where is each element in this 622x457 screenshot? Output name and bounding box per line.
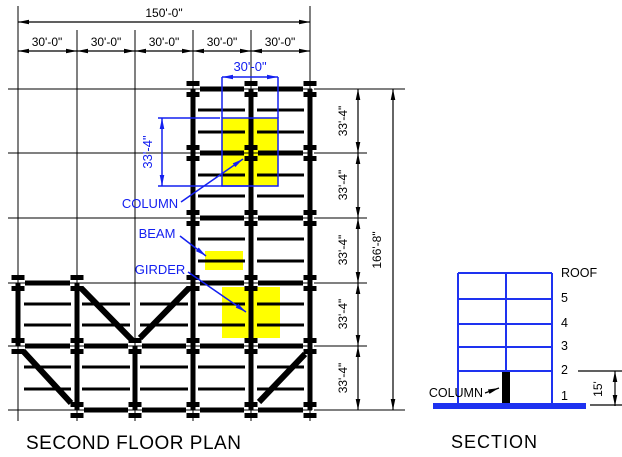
story-height-dim: 15' xyxy=(591,381,605,397)
section-column-leader xyxy=(485,388,499,393)
tributary-depth-dim: 33'-4" xyxy=(140,135,155,169)
bay-width-dim: 30'-0" xyxy=(149,35,180,49)
section-column-label: COLUMN xyxy=(429,386,483,400)
girder-label: GIRDER xyxy=(135,262,186,277)
level-label-2: 2 xyxy=(561,363,568,377)
grid-lines xyxy=(8,6,405,421)
level-label-1: 1 xyxy=(561,389,568,403)
drawing-svg: 150'-0" 30'-0" 30'-0" 30'-0" 30'-0" 30'-… xyxy=(0,0,622,457)
overall-depth-dim: 166'-8" xyxy=(370,231,384,268)
bay-depth-dim: 33'-4" xyxy=(336,170,350,201)
ground-line xyxy=(433,403,586,409)
bay-width-dim: 30'-0" xyxy=(265,35,296,49)
building-section: ROOF 5 4 3 2 1 COLUMN 15' xyxy=(429,266,622,409)
beam-label: BEAM xyxy=(139,226,176,241)
level-label-5: 5 xyxy=(561,291,568,305)
level-label-3: 3 xyxy=(561,339,568,353)
plan-title: SECOND FLOOR PLAN xyxy=(26,433,241,454)
bay-depth-dim: 33'-4" xyxy=(336,299,350,330)
bay-depth-dim: 33'-4" xyxy=(336,106,350,137)
bay-depth-dim: 33'-4" xyxy=(336,235,350,266)
bay-width-dim: 30'-0" xyxy=(207,35,238,49)
level-label-4: 4 xyxy=(561,316,568,330)
level-label-roof: ROOF xyxy=(561,266,597,280)
overall-width-dim: 150'-0" xyxy=(145,6,182,20)
structural-drawing: 150'-0" 30'-0" 30'-0" 30'-0" 30'-0" 30'-… xyxy=(0,0,622,457)
bay-width-dim: 30'-0" xyxy=(32,35,63,49)
column-label: COLUMN xyxy=(122,196,178,211)
bay-depth-dim: 33'-4" xyxy=(336,363,350,394)
tributary-width-dim: 30'-0" xyxy=(233,59,267,74)
section-title: SECTION xyxy=(451,432,538,452)
bay-width-dim: 30'-0" xyxy=(91,35,122,49)
section-column xyxy=(502,372,510,403)
